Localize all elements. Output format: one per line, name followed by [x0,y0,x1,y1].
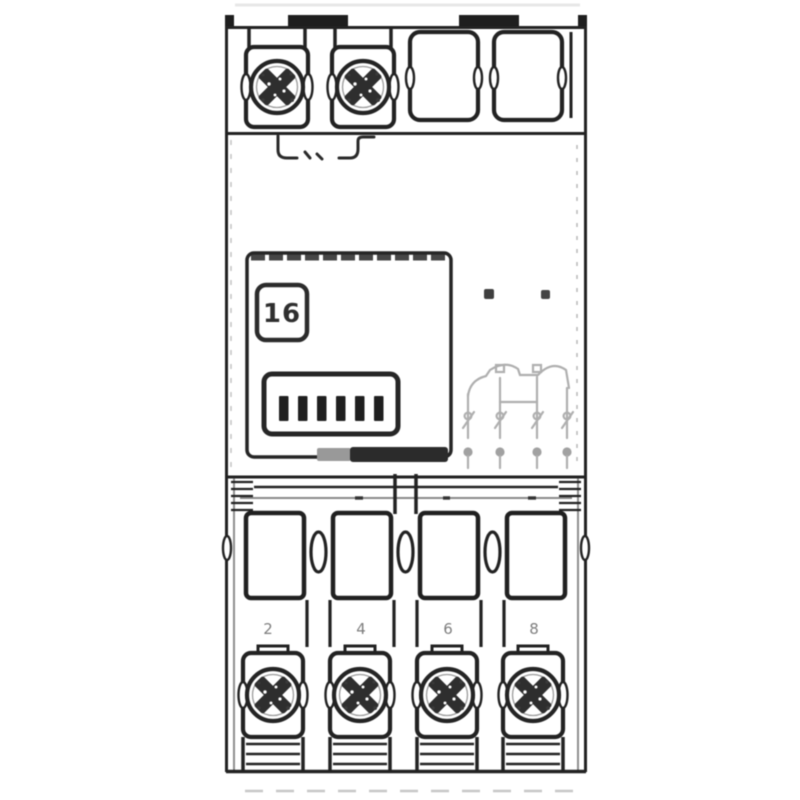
top-ridge-bar [225,15,234,27]
badge-label: 16 [263,299,301,329]
bottom-terminal-screw-1 [239,646,308,772]
bottom-terminal-screw-3 [413,646,482,772]
bottom-terminal-screw-4 [499,646,568,772]
bottom-terminal-block: 2 4 6 8 [223,474,589,791]
mid-section: 16 [231,136,577,470]
contact-window-4 [507,513,565,598]
contact-window-1 [246,513,304,598]
top-terminal-block [225,15,587,134]
slot-oval-3 [485,532,500,572]
slot-oval-2 [398,532,413,572]
terminal-clamp-1 [243,737,303,772]
top-ridge-bar [288,15,348,27]
terminal-label-2: 4 [356,620,366,638]
accessory-connector [264,374,398,434]
side-notch-left [223,536,231,560]
latch-tab-small [317,448,351,461]
test-point-dot-1 [484,289,494,299]
bottom-terminal-screw-2 [326,646,395,772]
slot-oval-1 [311,532,326,572]
top-terminal-screw-1 [242,27,313,127]
terminal-clamp-2 [330,737,390,772]
terminal-label-4: 8 [529,620,539,638]
wiring-schematic-print [463,365,573,468]
terminal-clamp-4 [503,737,563,772]
test-point-dot-2 [541,290,550,299]
channel-walls [307,600,504,647]
clip-mark [278,136,374,159]
slider-band [231,474,581,514]
contact-window-3 [420,513,478,598]
top-terminal-screw-2 [328,27,399,127]
top-ridge-bar [459,15,519,27]
terminal-label-3: 6 [443,620,453,638]
empty-terminal-well-1 [406,32,482,120]
rating-badge: 16 [257,285,307,340]
contact-window-2 [333,513,391,598]
terminal-label-1: 2 [263,620,273,638]
latch-tab [350,447,448,462]
side-notch-right [581,536,589,560]
empty-terminal-well-2 [490,32,566,120]
illustration-canvas: 16 [0,0,800,800]
top-ridge-bar [578,15,587,27]
terminal-clamp-3 [417,737,477,772]
device-illustration: 16 [0,0,800,800]
